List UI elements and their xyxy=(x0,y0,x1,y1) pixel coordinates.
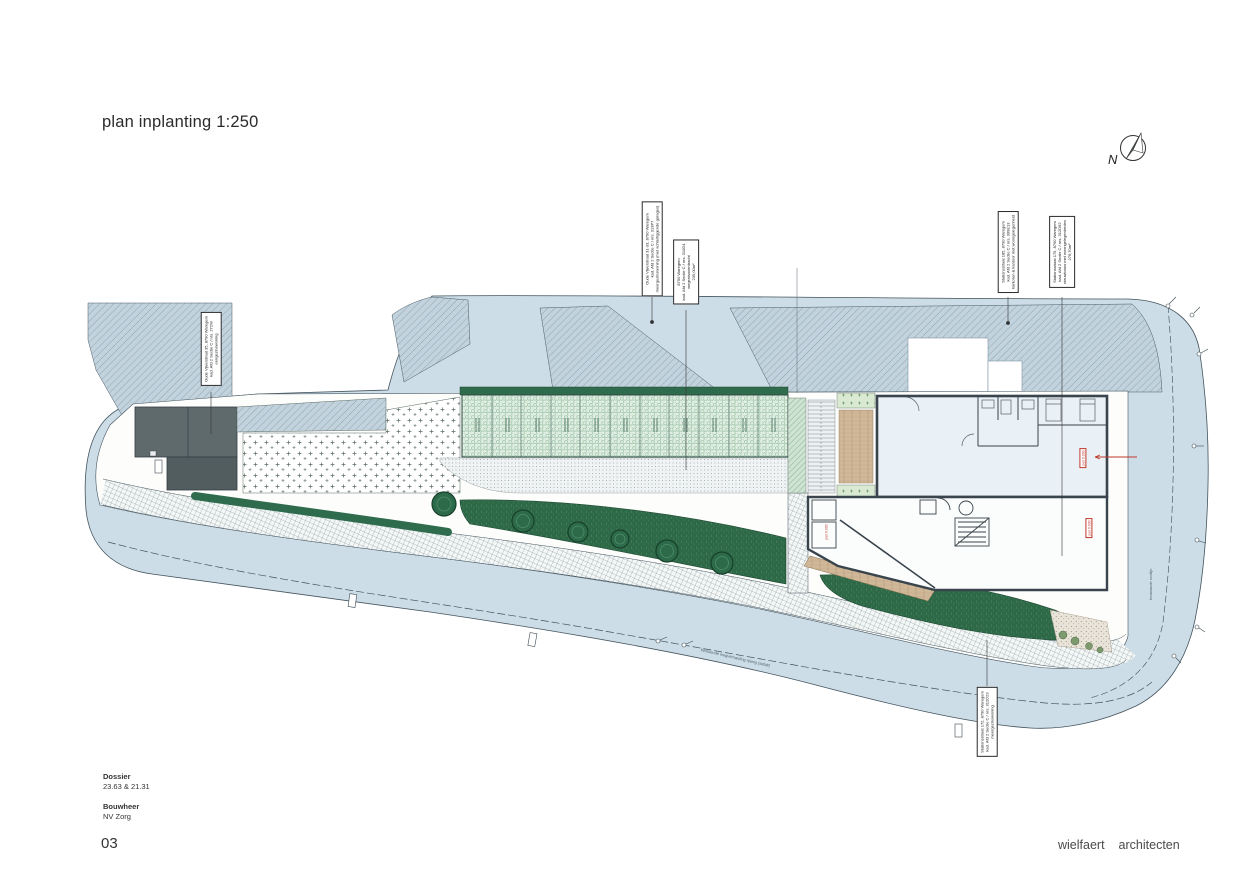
level-stamp-2: peil 9.000 xyxy=(1085,518,1092,538)
bouwheer-label: Bouwheer xyxy=(103,802,139,811)
page-title: plan inplanting 1:250 xyxy=(102,113,259,132)
parcel-label-1: Oude Vijverstraat 35, 8790 Waregem kad. … xyxy=(201,312,222,386)
firm-word-2: architecten xyxy=(1119,838,1180,852)
architect-firm: wielfaertarchitecten xyxy=(1058,838,1194,852)
bouwheer-value: NV Zorg xyxy=(103,812,131,821)
parcel-label-4: Stationsstraat 185, 8790 Waregem kad. Af… xyxy=(998,211,1019,293)
north-arrow-icon xyxy=(1121,133,1146,161)
page-number: 03 xyxy=(101,835,118,852)
site-plan-page: plan inplanting 1:250 N Oude Vijverstraa… xyxy=(0,0,1258,879)
firm-word-1: wielfaert xyxy=(1058,838,1105,852)
semi-paved-areas xyxy=(237,397,460,493)
new-building-upper xyxy=(877,396,1107,497)
hedge-top xyxy=(460,387,788,395)
parcel-label-3: 8790 Waregem kad. Afd 2 Sectie C / nrs. … xyxy=(673,240,699,305)
north-label: N xyxy=(1108,152,1117,167)
rooilijn-label: bestaande rooilijn xyxy=(1148,569,1153,600)
parcel-label-2: Oude Vijverstraat 31-33, 8790 Waregem ka… xyxy=(642,202,663,297)
level-stamp-3: peil 9.000 xyxy=(823,523,828,541)
parcel-label-6: Stationsstraat 172, 8790 Waregem kad. Af… xyxy=(977,687,998,757)
garage-building xyxy=(458,387,788,462)
dossier-value: 23.63 & 21.31 xyxy=(103,782,150,791)
parcel-label-5: Stationsstraat 175, 8790 Waregem kad. Af… xyxy=(1049,216,1075,288)
level-stamp-1: peil 9.000 xyxy=(1079,448,1086,468)
dossier-label: Dossier xyxy=(103,772,131,781)
paved-path-strip xyxy=(788,493,808,593)
driveway xyxy=(440,458,788,493)
